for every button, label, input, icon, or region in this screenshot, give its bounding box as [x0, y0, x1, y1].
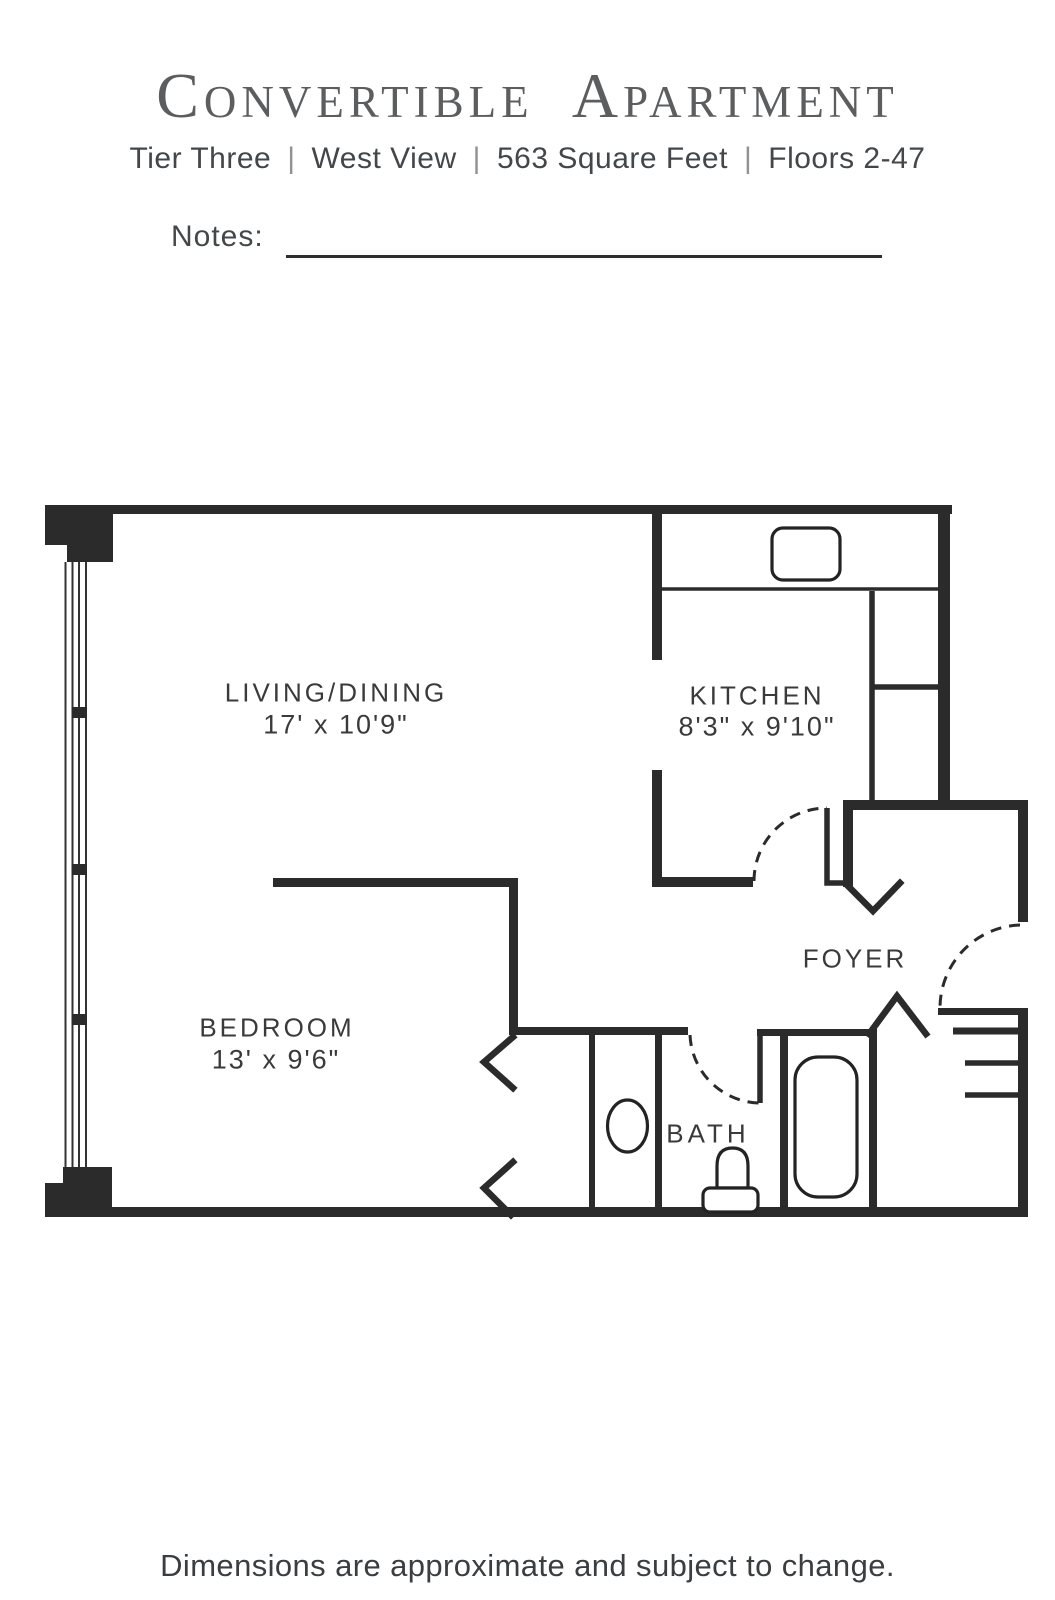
closet-shelves: [953, 1031, 1018, 1095]
foyer-closet-door: [846, 883, 900, 911]
entry-door-swing: [940, 925, 1020, 1008]
window-mullion: [72, 707, 88, 718]
kitchen-partitions: [872, 591, 938, 803]
room-label-foyer: FOYER: [803, 944, 908, 975]
room-label-bath: BATH: [666, 1119, 749, 1150]
kitchen-door-leaf: [827, 808, 845, 883]
room-label-kitchen: KITCHEN: [689, 681, 824, 712]
room-dims-living-dining: 17' x 10'9": [263, 710, 408, 741]
pedestal-sink-icon: [608, 1100, 648, 1152]
toilet-tank-icon: [703, 1188, 758, 1212]
window-mullion: [72, 864, 88, 875]
disclaimer-text: Dimensions are approximate and subject t…: [0, 1548, 1055, 1584]
floorplan-sheet: CONVERTIBLE APARTMENT Tier Three|West Vi…: [0, 0, 1055, 1600]
window-wall: [66, 562, 88, 1167]
bedroom-closet-door: [484, 1037, 513, 1088]
room-label-bedroom: BEDROOM: [199, 1013, 354, 1044]
room-dims-bedroom: 13' x 9'6": [212, 1045, 340, 1076]
floor-plan: [0, 0, 1055, 1600]
kitchen-door-swing: [754, 808, 827, 881]
room-label-living-dining: LIVING/DINING: [225, 678, 447, 709]
bath-door-swing: [690, 1035, 760, 1103]
entry-closet-door: [869, 996, 926, 1034]
room-dims-kitchen: 8'3" x 9'10": [678, 712, 835, 743]
toilet-bowl-icon: [717, 1148, 748, 1188]
closet-shelf: [965, 1063, 1018, 1095]
kitchen-sink-icon: [772, 528, 840, 580]
bath-tub-icon: [795, 1057, 857, 1197]
walls: [45, 505, 1028, 1217]
window-mullion: [72, 1014, 88, 1025]
